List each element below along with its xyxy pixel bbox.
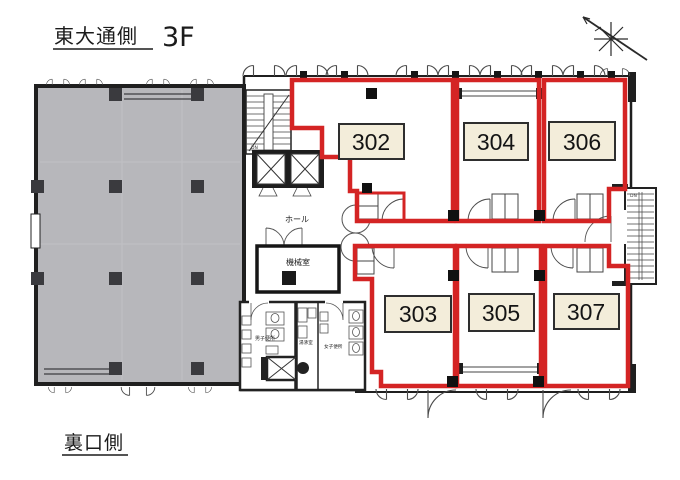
machine-room-label: 機械室 (286, 257, 310, 267)
elevator-bank (252, 150, 324, 196)
kitchenette-label: 湯沸室 (299, 339, 313, 346)
floorplan-drawing: DN ホール 機械室 (0, 0, 680, 480)
machine-room: 機械室 (257, 228, 339, 292)
back-side-label: 裏口側 (64, 432, 124, 454)
mens-toilet-label: 男子便所 (255, 335, 275, 342)
stairwell-left: DN (246, 90, 291, 154)
room-labels: 302 304 306 303 305 307 (339, 122, 619, 332)
street-side-label: 東大通側 (54, 24, 138, 48)
room-304-number: 304 (477, 129, 516, 155)
existing-tenant-area (31, 79, 244, 395)
floorplan-page: DN ホール 機械室 (0, 0, 680, 480)
room-302-number: 302 (352, 129, 390, 155)
west-door-opening (31, 214, 40, 248)
compass-icon (583, 17, 647, 60)
womens-toilet-label: 女子便所 (324, 343, 343, 350)
room-306-number: 306 (563, 129, 601, 155)
room-303-number: 303 (399, 301, 437, 327)
room-305-number: 305 (482, 300, 520, 326)
hall-label: ホール (285, 215, 309, 224)
stair-down-label: DN (630, 193, 637, 199)
south-door-arc (428, 390, 456, 418)
window-arcs-bottom (376, 389, 620, 418)
south-door-arc (543, 390, 571, 418)
double-door-arcs (266, 228, 302, 246)
room-307-number: 307 (567, 299, 605, 325)
restrooms: 男子便所 湯沸室 女子便所 (240, 299, 365, 390)
floor-label: 3F (162, 22, 195, 53)
